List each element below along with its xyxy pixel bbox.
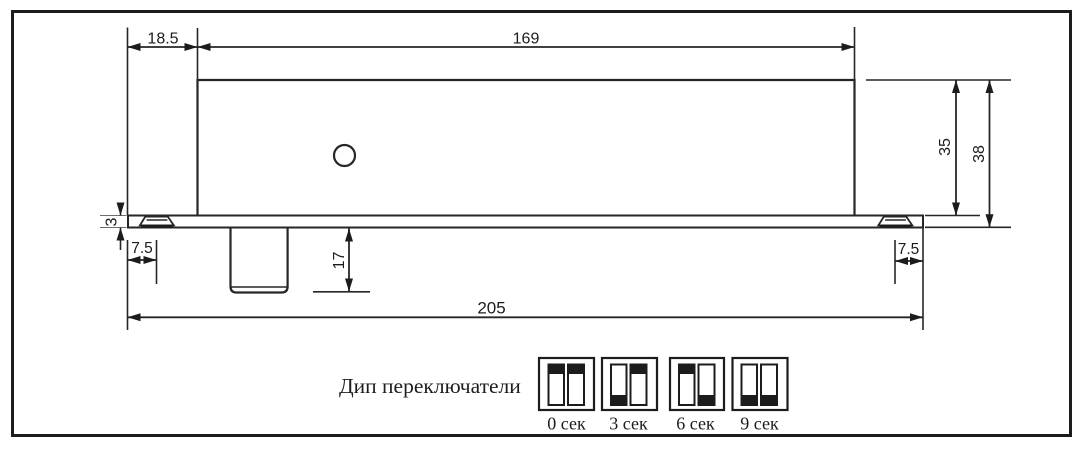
svg-text:7.5: 7.5 — [898, 241, 920, 258]
svg-text:Дип переключатели: Дип переключатели — [339, 374, 521, 398]
svg-text:3: 3 — [104, 217, 121, 226]
svg-text:17: 17 — [331, 252, 348, 270]
svg-text:3 сек: 3 сек — [609, 414, 648, 434]
svg-text:169: 169 — [513, 31, 540, 48]
svg-text:7.5: 7.5 — [131, 240, 153, 257]
svg-text:0 сек: 0 сек — [547, 414, 586, 434]
svg-text:18.5: 18.5 — [147, 31, 178, 48]
svg-text:38: 38 — [971, 145, 988, 163]
svg-text:205: 205 — [477, 299, 505, 318]
svg-text:35: 35 — [937, 138, 954, 156]
svg-text:9 сек: 9 сек — [740, 414, 779, 434]
svg-text:6 сек: 6 сек — [676, 414, 715, 434]
